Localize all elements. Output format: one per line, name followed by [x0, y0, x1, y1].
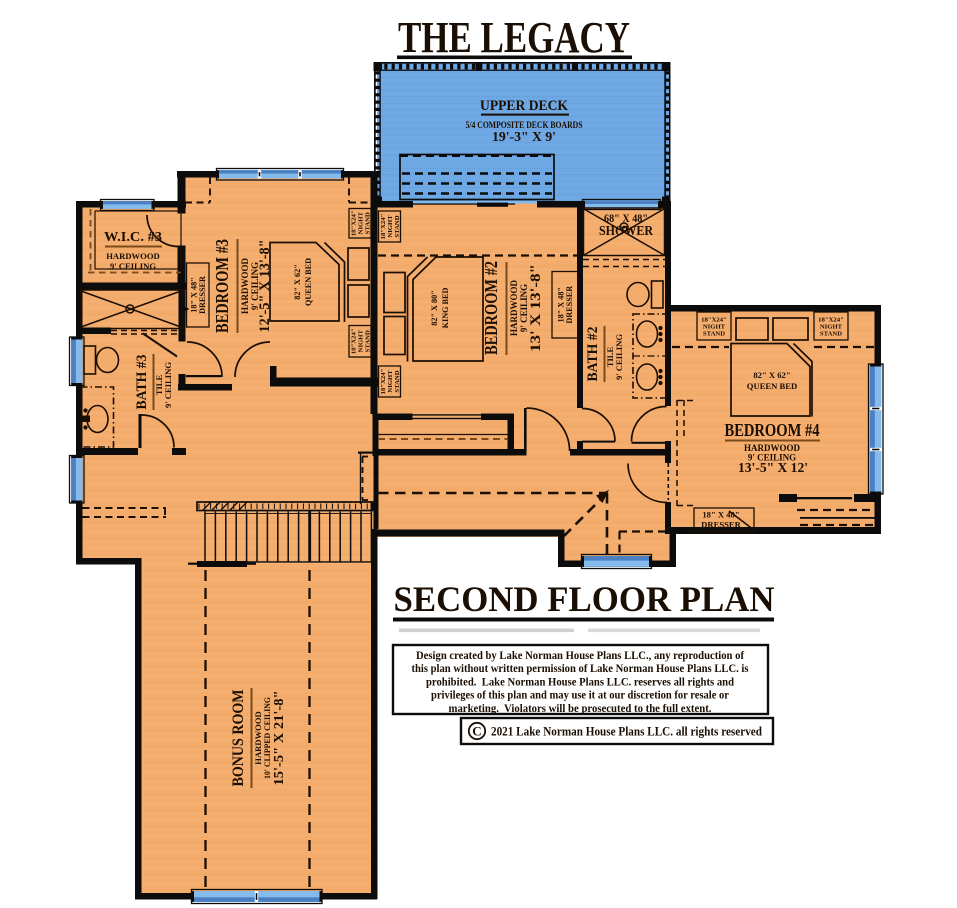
svg-text:DRESSER: DRESSER — [198, 276, 207, 314]
svg-text:BONUS ROOM: BONUS ROOM — [230, 689, 247, 786]
svg-text:NIGHT: NIGHT — [387, 215, 394, 238]
svg-text:19'-3" X 9': 19'-3" X 9' — [492, 129, 556, 144]
svg-text:BEDROOM #4: BEDROOM #4 — [725, 420, 820, 440]
svg-text:NIGHT: NIGHT — [357, 212, 364, 235]
svg-text:15'-5" X 21'-8": 15'-5" X 21'-8" — [271, 691, 286, 786]
svg-text:82" X 80": 82" X 80" — [430, 290, 439, 325]
svg-text:STAND: STAND — [364, 212, 371, 234]
svg-text:18"X24": 18"X24" — [818, 316, 844, 323]
svg-text:DRESSER: DRESSER — [701, 520, 741, 530]
svg-text:HARDWOOD: HARDWOOD — [106, 251, 159, 261]
svg-text:prohibited. Lake Norman House: prohibited. Lake Norman House Plans LLC.… — [426, 674, 734, 688]
svg-text:18"X24": 18"X24" — [350, 210, 357, 236]
svg-text:13'-5" X 12': 13'-5" X 12' — [738, 461, 808, 476]
svg-text:BATH #3: BATH #3 — [134, 355, 150, 410]
svg-text:KING BED: KING BED — [441, 288, 450, 329]
svg-text:BATH #2: BATH #2 — [585, 327, 601, 382]
svg-text:HARDWOOD: HARDWOOD — [240, 258, 250, 315]
svg-text:marketing. Violators will be: marketing. Violators will be prosecuted … — [449, 701, 712, 715]
svg-text:Design created by Lake Norman: Design created by Lake Norman House Plan… — [416, 648, 745, 662]
svg-text:UPPER DECK: UPPER DECK — [480, 98, 568, 114]
svg-text:STAND: STAND — [394, 215, 401, 237]
svg-text:THE LEGACY: THE LEGACY — [398, 13, 630, 62]
svg-text:18"X24": 18"X24" — [350, 328, 357, 354]
svg-text:QUEEN BED: QUEEN BED — [747, 381, 797, 391]
svg-text:12'-5" X 13'-8": 12'-5" X 13'-8" — [257, 240, 273, 333]
svg-text:privileges of this plan and ma: privileges of this plan and may use it a… — [431, 688, 730, 702]
svg-text:18"X24": 18"X24" — [380, 369, 387, 395]
svg-text:9' CEILING: 9' CEILING — [614, 334, 624, 380]
svg-text:9' CEILING: 9' CEILING — [110, 261, 156, 271]
svg-text:this plan without written perm: this plan without written permission of … — [412, 661, 749, 675]
svg-text:STAND: STAND — [820, 330, 842, 337]
svg-text:2021 Lake Norman House Plans L: 2021 Lake Norman House Plans LLC. all ri… — [491, 725, 762, 739]
svg-text:STAND: STAND — [364, 330, 371, 352]
svg-text:NIGHT: NIGHT — [820, 323, 843, 330]
svg-text:HARDWOOD: HARDWOOD — [744, 443, 801, 453]
svg-text:QUEEN BED: QUEEN BED — [304, 258, 313, 306]
svg-text:W.I.C. #3: W.I.C. #3 — [104, 230, 162, 245]
svg-text:BEDROOM #3: BEDROOM #3 — [212, 239, 232, 333]
svg-text:18"X24": 18"X24" — [701, 316, 727, 323]
svg-text:BEDROOM #2: BEDROOM #2 — [481, 261, 501, 355]
svg-text:18"X24": 18"X24" — [380, 214, 387, 240]
svg-text:82" X 62": 82" X 62" — [293, 264, 302, 299]
svg-text:DRESSER: DRESSER — [565, 286, 574, 324]
svg-text:SECOND FLOOR PLAN: SECOND FLOOR PLAN — [394, 579, 775, 619]
svg-text:13' X 13'-8": 13' X 13'-8" — [528, 264, 544, 352]
svg-text:C: C — [472, 724, 481, 739]
svg-text:HARDWOOD: HARDWOOD — [509, 280, 519, 337]
svg-text:SHOWER: SHOWER — [599, 224, 654, 239]
svg-text:9' CEILING: 9' CEILING — [163, 362, 173, 408]
svg-text:NIGHT: NIGHT — [387, 370, 394, 393]
svg-text:STAND: STAND — [394, 370, 401, 392]
svg-text:STAND: STAND — [703, 330, 725, 337]
svg-text:NIGHT: NIGHT — [703, 323, 726, 330]
svg-text:NIGHT: NIGHT — [357, 330, 364, 353]
svg-text:82" X 62": 82" X 62" — [753, 370, 790, 380]
